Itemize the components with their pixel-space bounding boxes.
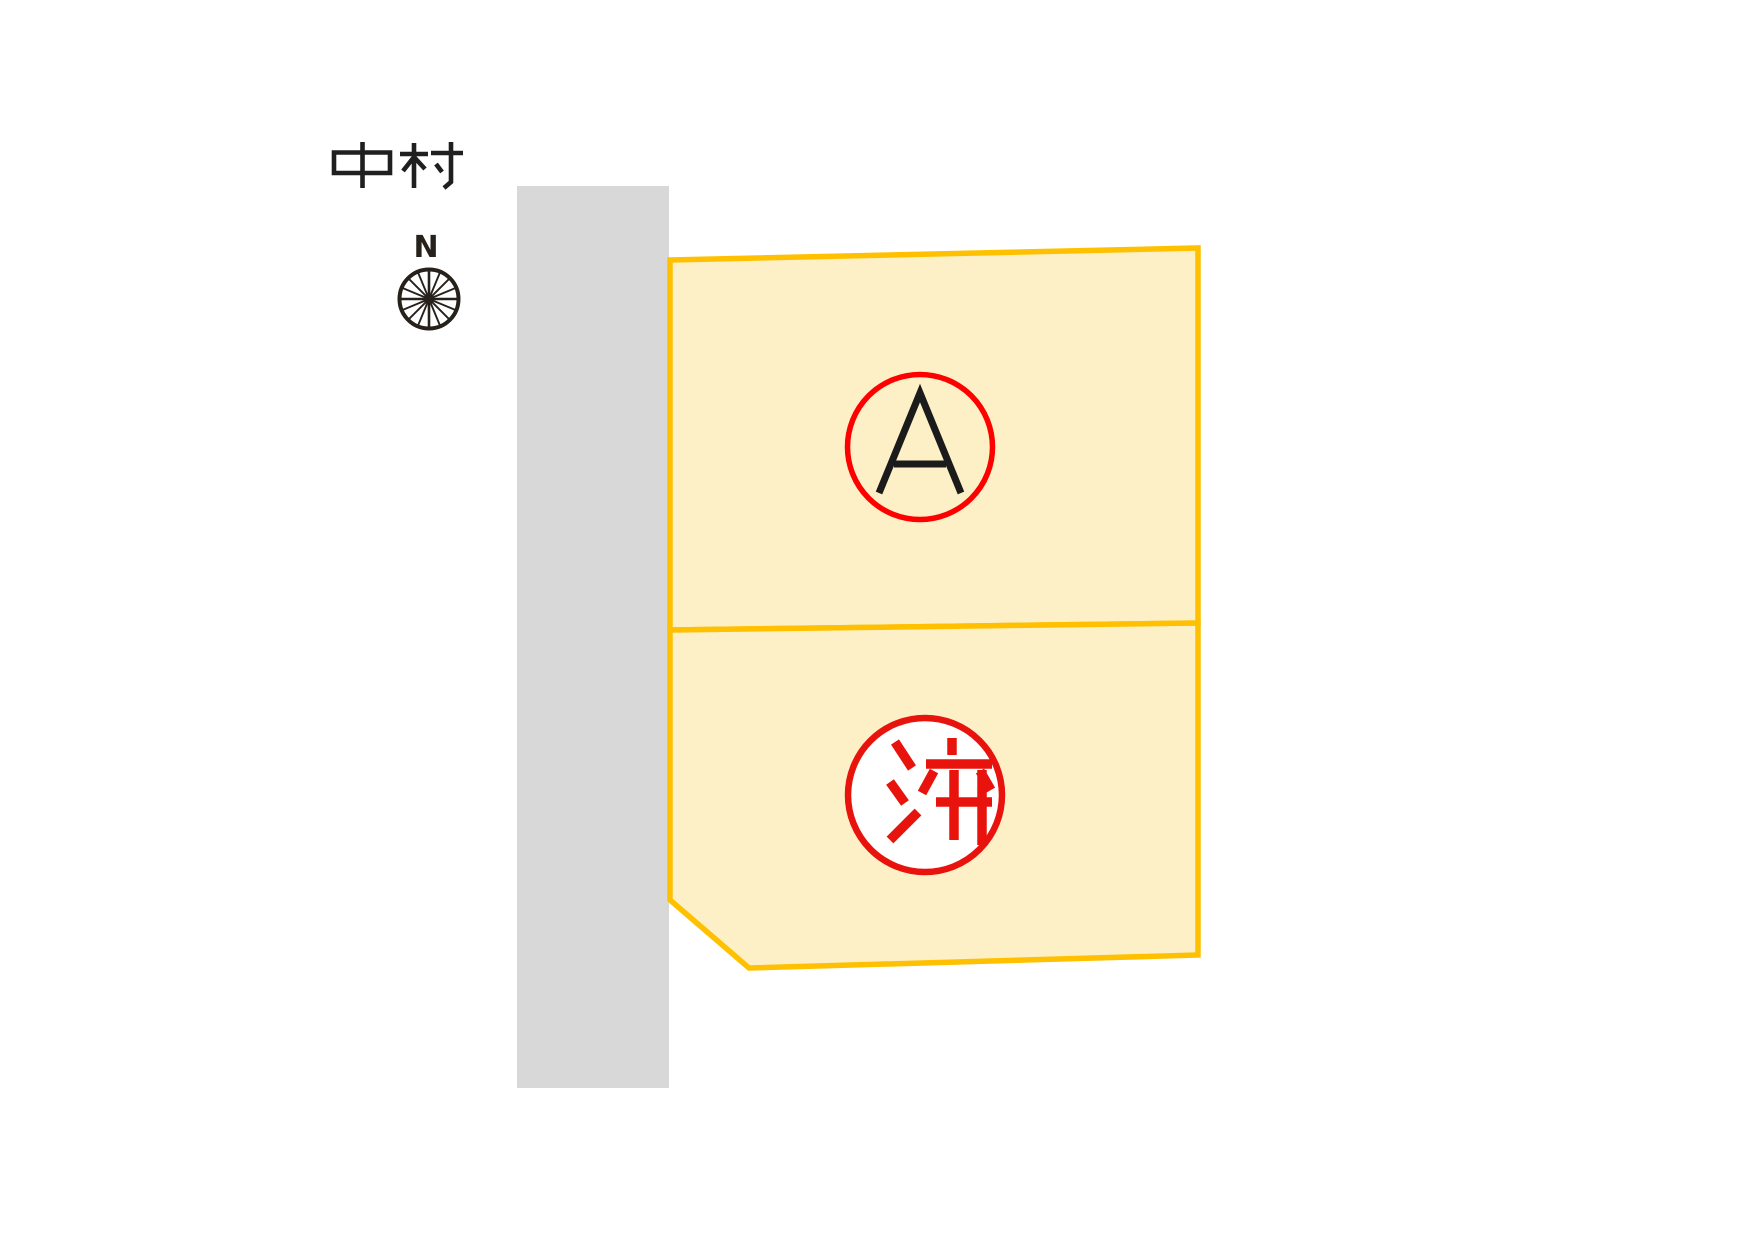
sold-marker: [848, 718, 1002, 872]
site-plan-drawing: N: [0, 0, 1755, 1241]
road-strip: [517, 186, 669, 1088]
kanji-mura: [400, 142, 463, 188]
kanji-naka: [334, 142, 390, 188]
lot-a-parcel: [670, 248, 1198, 630]
compass: N: [398, 230, 460, 330]
area-label: [334, 142, 463, 188]
compass-rose-icon: [398, 268, 460, 330]
lot-map-canvas: 中村 A 済: [0, 0, 1755, 1241]
compass-n-label: N: [413, 230, 438, 265]
